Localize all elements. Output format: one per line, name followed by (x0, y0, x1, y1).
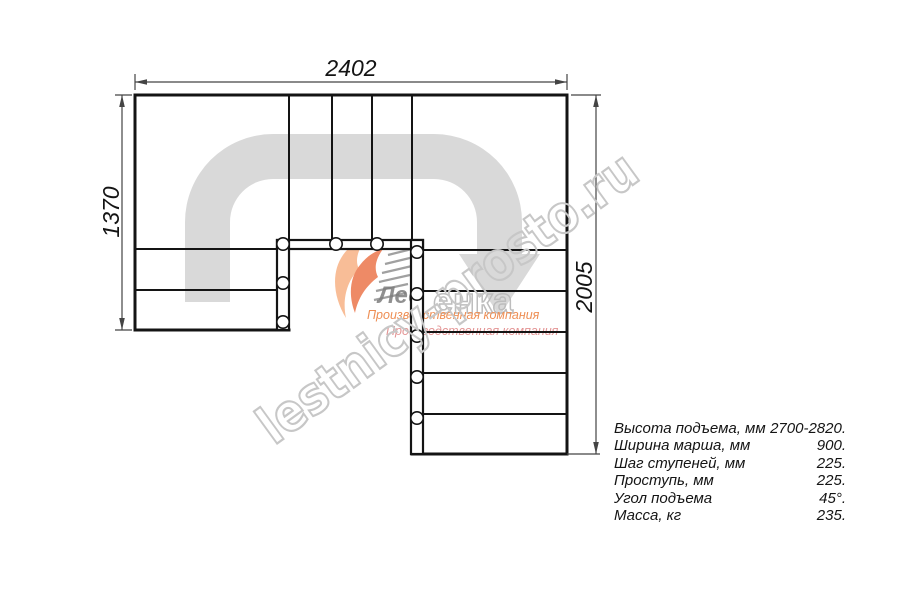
dimension-right-height-label: 2005 (571, 261, 597, 313)
baluster (411, 246, 423, 258)
spec-row-flight-width: Ширина марша, мм 900. (614, 437, 846, 454)
dimension-left-height-label: 1370 (98, 186, 124, 237)
baluster (371, 238, 383, 250)
spec-label: Проступь, мм (614, 472, 714, 489)
dimension-width-label: 2402 (324, 55, 376, 81)
baluster (277, 238, 289, 250)
spec-label: Масса, кг (614, 507, 681, 524)
spec-value: 225. (817, 472, 846, 489)
spec-value: 45°. (819, 490, 846, 507)
spec-row-height: Высота подъема, мм 2700-2820. (614, 420, 846, 437)
spec-value: 2700-2820. (770, 420, 846, 437)
spec-value: 225. (817, 455, 846, 472)
baluster (277, 316, 289, 328)
staircase-plan-page: Лес енка Производственная компания Произ… (0, 0, 900, 600)
spec-row-tread: Проступь, мм 225. (614, 472, 846, 489)
baluster (411, 371, 423, 383)
spec-label: Шаг ступеней, мм (614, 455, 745, 472)
spec-value: 900. (817, 437, 846, 454)
spec-value: 235. (817, 507, 846, 524)
well-top-stringer (277, 240, 423, 249)
spec-label: Угол подъема (614, 490, 712, 507)
spec-label: Ширина марша, мм (614, 437, 750, 454)
baluster (411, 412, 423, 424)
specs-table: Высота подъема, мм 2700-2820. Ширина мар… (614, 420, 846, 524)
baluster (330, 238, 342, 250)
spec-row-mass: Масса, кг 235. (614, 507, 846, 524)
spec-row-angle: Угол подъема 45°. (614, 490, 846, 507)
spec-label: Высота подъема, мм (614, 420, 766, 437)
spec-row-step-pitch: Шаг ступеней, мм 225. (614, 455, 846, 472)
baluster (277, 277, 289, 289)
